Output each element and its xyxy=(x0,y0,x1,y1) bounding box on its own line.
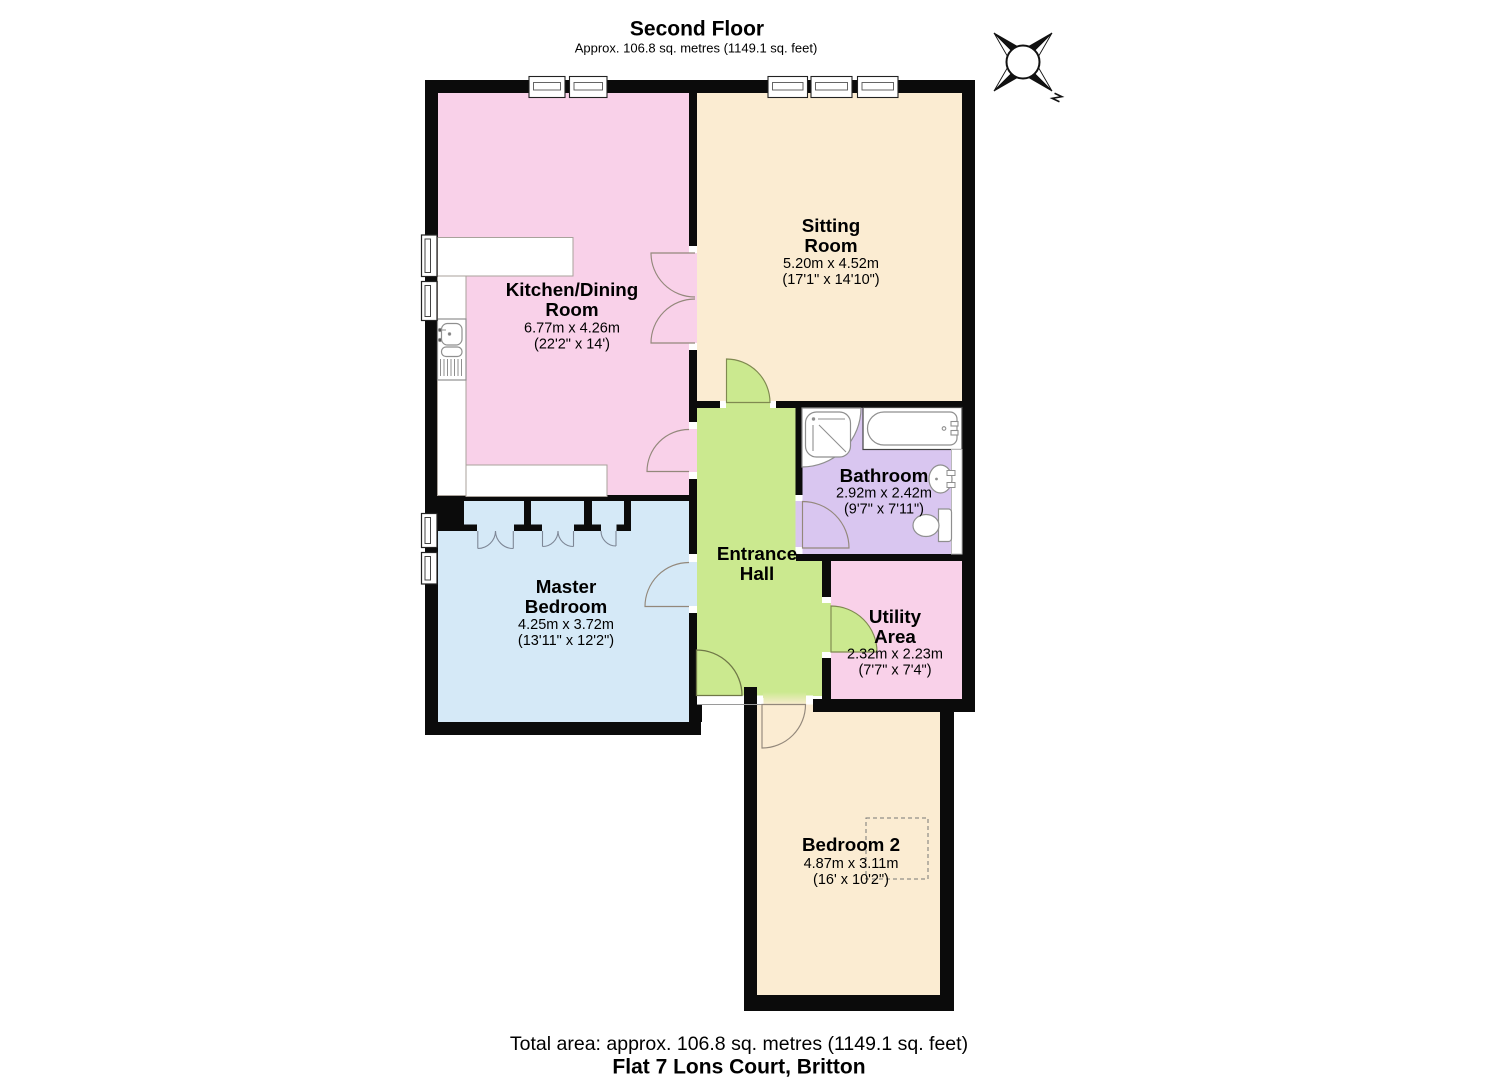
svg-text:Hall: Hall xyxy=(740,563,774,584)
svg-text:4.87m x 3.11m: 4.87m x 3.11m xyxy=(804,856,899,872)
svg-text:Area: Area xyxy=(874,626,916,647)
svg-text:(22'2" x 14'): (22'2" x 14') xyxy=(534,337,610,353)
svg-text:6.77m x 4.26m: 6.77m x 4.26m xyxy=(524,321,620,337)
svg-text:5.20m x 4.52m: 5.20m x 4.52m xyxy=(783,256,879,272)
svg-text:Kitchen/Dining: Kitchen/Dining xyxy=(506,279,639,300)
svg-text:Flat 7 Lons Court, Britton: Flat 7 Lons Court, Britton xyxy=(612,1056,865,1079)
svg-text:Second Floor: Second Floor xyxy=(630,18,764,41)
svg-text:Total area: approx. 106.8 sq.: Total area: approx. 106.8 sq. metres (11… xyxy=(510,1033,968,1055)
svg-text:(16' x 10'2"): (16' x 10'2") xyxy=(813,872,889,888)
svg-text:Room: Room xyxy=(545,299,598,320)
svg-text:Bathroom: Bathroom xyxy=(840,465,929,486)
svg-text:Room: Room xyxy=(804,235,857,256)
svg-text:2.32m x 2.23m: 2.32m x 2.23m xyxy=(847,647,943,663)
svg-text:Bedroom: Bedroom xyxy=(525,596,607,617)
svg-text:Sitting: Sitting xyxy=(802,215,860,236)
svg-text:(13'11" x 12'2"): (13'11" x 12'2") xyxy=(518,633,614,649)
svg-text:2.92m x 2.42m: 2.92m x 2.42m xyxy=(836,486,932,502)
svg-text:Entrance: Entrance xyxy=(717,543,797,564)
svg-text:Master: Master xyxy=(536,576,597,597)
svg-text:Bedroom 2: Bedroom 2 xyxy=(802,834,900,855)
svg-text:(17'1" x 14'10"): (17'1" x 14'10") xyxy=(782,272,879,288)
svg-text:4.25m x 3.72m: 4.25m x 3.72m xyxy=(518,617,614,633)
svg-text:Approx. 106.8 sq. metres (1149: Approx. 106.8 sq. metres (1149.1 sq. fee… xyxy=(575,41,818,56)
svg-text:Utility: Utility xyxy=(869,606,922,627)
svg-text:(7'7" x 7'4"): (7'7" x 7'4") xyxy=(858,663,931,679)
svg-text:(9'7" x 7'11"): (9'7" x 7'11") xyxy=(844,502,924,518)
